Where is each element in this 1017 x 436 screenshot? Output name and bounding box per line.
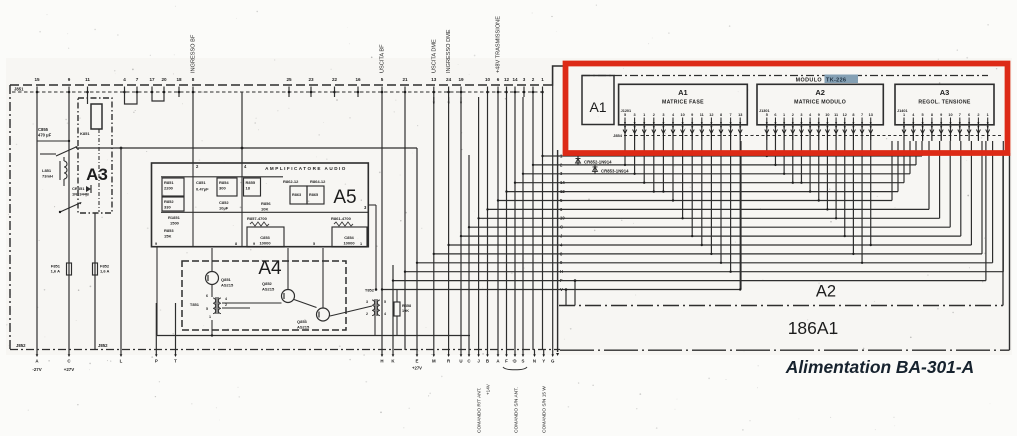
svg-text:AS215: AS215 xyxy=(221,283,234,288)
svg-text:J852: J852 xyxy=(98,343,108,348)
svg-text:MATRICE FASE: MATRICE FASE xyxy=(662,100,704,106)
svg-text:K851: K851 xyxy=(80,131,90,136)
svg-text:R856: R856 xyxy=(261,201,271,206)
svg-text:73mH: 73mH xyxy=(42,174,53,179)
svg-text:2: 2 xyxy=(225,303,227,307)
svg-text:2: 2 xyxy=(792,113,794,117)
svg-text:R863: R863 xyxy=(292,193,301,197)
svg-text:N: N xyxy=(533,359,536,364)
svg-text:A3: A3 xyxy=(86,165,108,184)
svg-text:G: G xyxy=(551,359,555,364)
svg-text:1: 1 xyxy=(783,113,785,117)
svg-text:2: 2 xyxy=(532,77,535,82)
svg-text:10: 10 xyxy=(825,113,829,117)
svg-text:Q852: Q852 xyxy=(262,281,273,286)
svg-text:7: 7 xyxy=(861,113,863,117)
svg-text:A5: A5 xyxy=(333,187,356,208)
svg-text:5: 5 xyxy=(381,77,384,82)
svg-text:17: 17 xyxy=(149,77,155,82)
svg-text:8: 8 xyxy=(720,113,722,117)
svg-text:5: 5 xyxy=(624,113,626,117)
svg-text:R862-12: R862-12 xyxy=(283,179,299,184)
svg-text:INGRESSO BF: INGRESSO BF xyxy=(191,34,197,73)
svg-text:A2: A2 xyxy=(815,88,825,97)
svg-text:18: 18 xyxy=(176,77,182,82)
svg-text:8: 8 xyxy=(235,242,237,246)
svg-text:15K: 15K xyxy=(164,234,171,239)
svg-text:300: 300 xyxy=(219,186,226,191)
svg-text:R851: R851 xyxy=(164,180,174,185)
svg-text:5: 5 xyxy=(384,300,386,304)
svg-text:R858: R858 xyxy=(402,304,411,308)
svg-text:7: 7 xyxy=(959,113,961,117)
svg-text:U: U xyxy=(459,359,462,364)
svg-text:CR851: CR851 xyxy=(72,186,85,191)
svg-text:1: 1 xyxy=(643,113,645,117)
svg-text:8: 8 xyxy=(931,113,933,117)
svg-text:F: F xyxy=(505,359,508,364)
svg-text:9: 9 xyxy=(68,77,71,82)
svg-text:10: 10 xyxy=(680,113,684,117)
svg-text:T852: T852 xyxy=(365,288,375,293)
svg-text:Q851: Q851 xyxy=(221,277,232,282)
svg-text:P: P xyxy=(155,359,158,364)
svg-text:13: 13 xyxy=(738,113,742,117)
svg-text:1500: 1500 xyxy=(170,221,180,226)
svg-text:10: 10 xyxy=(948,113,952,117)
svg-text:E: E xyxy=(416,359,419,364)
svg-text:L: L xyxy=(120,359,123,364)
svg-text:R857-4700: R857-4700 xyxy=(247,216,268,221)
svg-text:INGRESSO DME: INGRESSO DME xyxy=(446,29,452,73)
svg-text:24: 24 xyxy=(446,77,452,82)
svg-text:1: 1 xyxy=(903,113,905,117)
svg-text:4: 4 xyxy=(225,297,227,301)
svg-text:2: 2 xyxy=(977,113,979,117)
svg-text:6: 6 xyxy=(206,294,208,298)
svg-text:C851: C851 xyxy=(196,180,206,185)
svg-text:8: 8 xyxy=(192,77,195,82)
svg-text:Alimentation BA-301-A: Alimentation BA-301-A xyxy=(785,357,974,377)
svg-text:1: 1 xyxy=(209,315,211,319)
svg-text:13: 13 xyxy=(869,113,873,117)
svg-text:USCITA DME: USCITA DME xyxy=(431,39,437,73)
svg-text:L851: L851 xyxy=(42,168,52,173)
svg-text:19: 19 xyxy=(458,77,464,82)
svg-text:5: 5 xyxy=(206,307,208,311)
svg-text:C855: C855 xyxy=(38,127,49,132)
svg-text:AS215: AS215 xyxy=(262,287,275,292)
svg-text:13: 13 xyxy=(431,77,437,82)
svg-text:12: 12 xyxy=(843,113,847,117)
svg-text:7: 7 xyxy=(730,113,732,117)
svg-text:TK-226: TK-226 xyxy=(826,78,846,84)
svg-text:A1: A1 xyxy=(589,99,606,115)
svg-text:10000: 10000 xyxy=(259,241,271,246)
svg-text:330: 330 xyxy=(164,205,171,210)
svg-text:R853: R853 xyxy=(164,228,174,233)
svg-text:Q853: Q853 xyxy=(297,319,308,324)
svg-text:11: 11 xyxy=(834,113,838,117)
svg-text:2: 2 xyxy=(653,113,655,117)
svg-text:1,6 A: 1,6 A xyxy=(51,269,61,274)
svg-text:5: 5 xyxy=(313,242,315,246)
svg-text:R852: R852 xyxy=(164,199,174,204)
svg-text:D: D xyxy=(513,359,516,364)
svg-text:20: 20 xyxy=(161,77,167,82)
svg-text:186A1: 186A1 xyxy=(788,318,839,338)
svg-text:4: 4 xyxy=(123,77,126,82)
svg-text:H: H xyxy=(380,359,383,364)
svg-text:22: 22 xyxy=(332,77,338,82)
svg-text:12: 12 xyxy=(709,113,713,117)
svg-text:10K: 10K xyxy=(402,309,409,313)
svg-text:1: 1 xyxy=(987,113,989,117)
svg-text:1,6 A: 1,6 A xyxy=(100,269,110,274)
svg-text:10: 10 xyxy=(485,77,491,82)
svg-text:COMANDO R/T ANT.: COMANDO R/T ANT. xyxy=(477,388,483,434)
svg-text:COMANDO S/N 15 W: COMANDO S/N 15 W xyxy=(542,386,548,433)
svg-text:CR853-1N914: CR853-1N914 xyxy=(601,168,629,173)
svg-text:AS215: AS215 xyxy=(297,325,310,330)
svg-text:4: 4 xyxy=(384,312,386,316)
svg-text:S: S xyxy=(522,359,525,364)
svg-text:3: 3 xyxy=(800,113,802,117)
svg-text:11: 11 xyxy=(700,113,704,117)
svg-text:470 µF: 470 µF xyxy=(38,133,52,138)
svg-text:25: 25 xyxy=(286,77,292,82)
svg-text:-27V: -27V xyxy=(32,367,41,372)
svg-text:6: 6 xyxy=(497,77,500,82)
svg-text:B: B xyxy=(486,359,489,364)
svg-text:9: 9 xyxy=(818,113,820,117)
svg-text:9: 9 xyxy=(253,242,255,246)
svg-text:1N1344B: 1N1344B xyxy=(72,192,89,197)
svg-text:J854: J854 xyxy=(613,133,623,138)
svg-text:18: 18 xyxy=(246,186,251,191)
svg-text:AMPLIFICATORE AUDIO: AMPLIFICATORE AUDIO xyxy=(265,166,347,171)
svg-text:1: 1 xyxy=(360,242,362,246)
svg-text:COMANDO S/N ANT.: COMANDO S/N ANT. xyxy=(514,387,520,433)
svg-text:CR852-1N914: CR852-1N914 xyxy=(584,160,612,165)
svg-text:T851: T851 xyxy=(190,302,200,307)
svg-text:5: 5 xyxy=(766,113,768,117)
svg-text:R865: R865 xyxy=(309,193,318,197)
svg-text:10K: 10K xyxy=(261,207,268,212)
svg-text:3: 3 xyxy=(366,300,368,304)
svg-text:M: M xyxy=(432,359,436,364)
svg-text:8: 8 xyxy=(852,113,854,117)
svg-text:A3: A3 xyxy=(940,88,950,97)
svg-text:C852: C852 xyxy=(219,200,229,205)
svg-text:C854: C854 xyxy=(344,235,354,240)
svg-text:A1: A1 xyxy=(678,88,688,97)
svg-text:23: 23 xyxy=(308,77,314,82)
svg-text:21: 21 xyxy=(402,77,408,82)
svg-text:+27V: +27V xyxy=(412,366,422,371)
svg-text:A2: A2 xyxy=(816,283,836,301)
svg-text:15: 15 xyxy=(34,77,40,82)
svg-text:2: 2 xyxy=(366,312,368,316)
svg-text:A4: A4 xyxy=(258,258,282,279)
svg-text:+27V: +27V xyxy=(64,367,74,372)
svg-text:REGOL. TENSIONE: REGOL. TENSIONE xyxy=(918,100,971,106)
svg-text:3: 3 xyxy=(523,77,526,82)
svg-text:R854: R854 xyxy=(219,180,229,185)
svg-text:1: 1 xyxy=(541,77,544,82)
svg-text:J1301: J1301 xyxy=(759,109,770,113)
svg-text:0.47µF: 0.47µF xyxy=(196,187,209,192)
svg-text:5: 5 xyxy=(922,113,924,117)
svg-text:Y: Y xyxy=(542,359,545,364)
svg-text:USCITA BF: USCITA BF xyxy=(380,44,386,73)
svg-text:+14V: +14V xyxy=(486,383,491,395)
svg-text:11: 11 xyxy=(85,77,90,82)
svg-text:16: 16 xyxy=(355,77,361,82)
svg-text:6: 6 xyxy=(774,113,776,117)
svg-text:2200: 2200 xyxy=(164,186,174,191)
svg-text:R1851: R1851 xyxy=(168,215,181,220)
svg-text:MATRICE MODULO: MATRICE MODULO xyxy=(794,100,846,106)
svg-text:C853: C853 xyxy=(260,235,270,240)
svg-text:9: 9 xyxy=(155,242,157,246)
svg-text:3: 3 xyxy=(634,113,636,117)
svg-text:T: T xyxy=(174,359,177,364)
svg-text:10000: 10000 xyxy=(343,241,355,246)
svg-text:6: 6 xyxy=(968,113,970,117)
svg-text:3: 3 xyxy=(662,113,664,117)
svg-text:MODULO: MODULO xyxy=(796,78,822,84)
svg-text:9: 9 xyxy=(940,113,942,117)
svg-text:R861-4700: R861-4700 xyxy=(331,216,352,221)
svg-text:7: 7 xyxy=(136,77,139,82)
svg-text:10µF: 10µF xyxy=(219,206,229,211)
svg-text:R864-12: R864-12 xyxy=(310,179,326,184)
svg-text:9: 9 xyxy=(691,113,693,117)
svg-text:J852: J852 xyxy=(16,343,26,348)
svg-text:14: 14 xyxy=(512,77,518,82)
svg-text:R855: R855 xyxy=(246,180,256,185)
svg-text:+48V TRASMISSIONE: +48V TRASMISSIONE xyxy=(496,16,502,73)
svg-text:J851: J851 xyxy=(14,87,24,92)
